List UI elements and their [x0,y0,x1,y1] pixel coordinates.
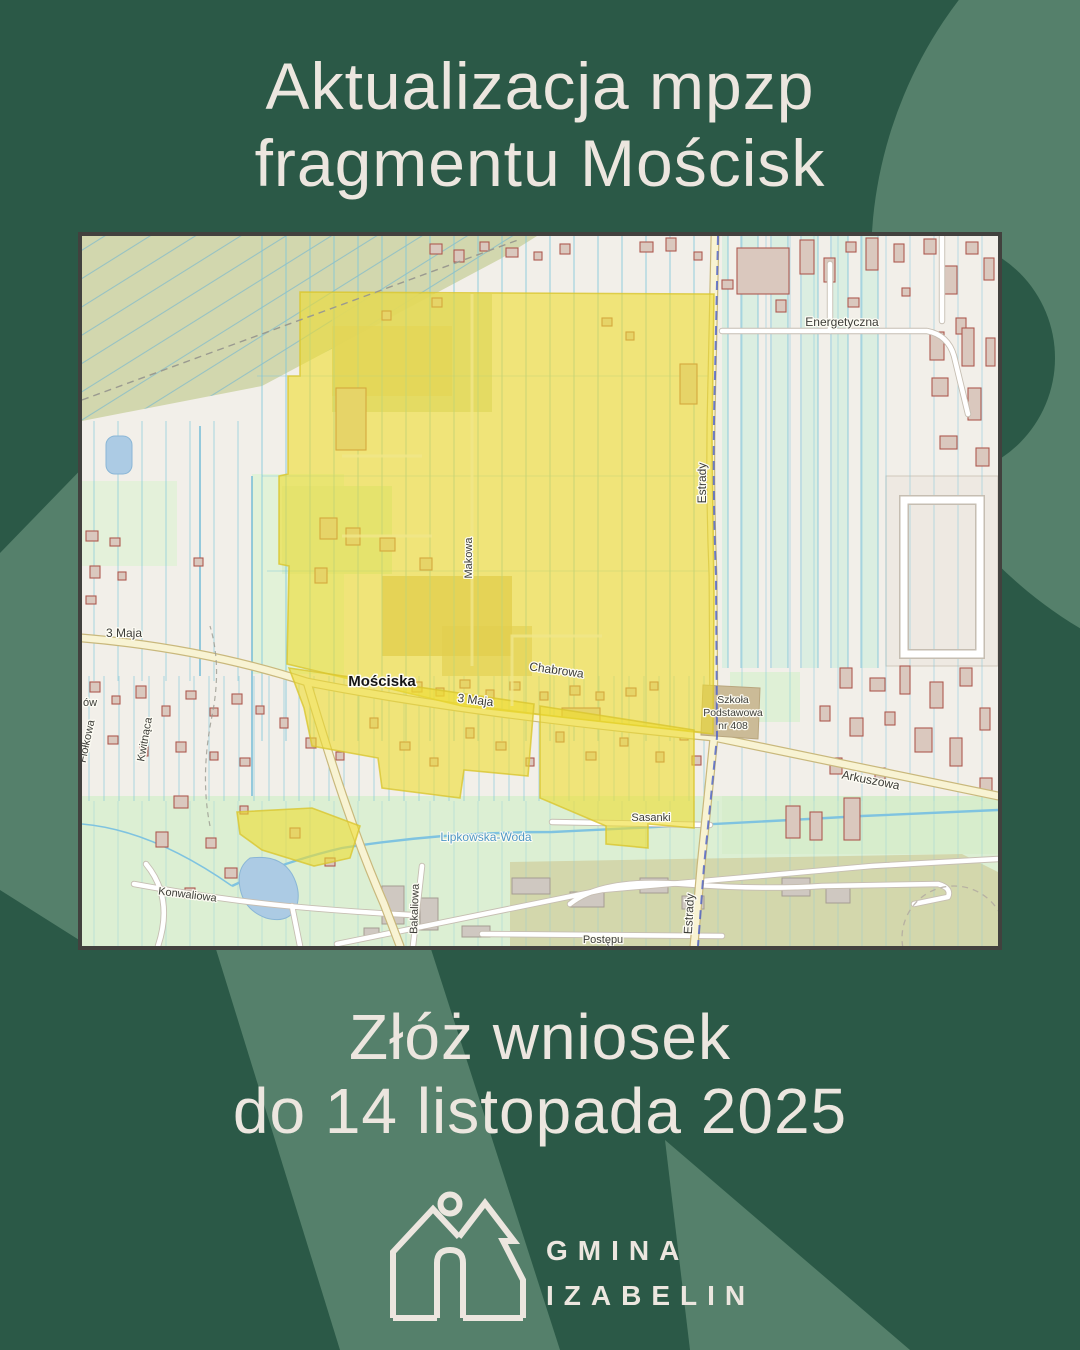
title-line-2: fragmentu Mościsk [0,125,1080,202]
pond-small [106,436,132,474]
title-line-1: Aktualizacja mpzp [0,48,1080,125]
school-label-line2: Podstawowa [703,707,763,719]
street-label-sasanki: Sasanki [631,812,670,824]
poster-title: Aktualizacja mpzp fragmentu Mościsk [0,48,1080,202]
street-label-makowa: Makowa [463,537,475,579]
school-label-line3: nr 408 [718,720,748,732]
place-label-moscisk: Mościska [348,673,416,690]
cta-line-1: Złóż wniosek [0,1000,1080,1074]
street-label-fragment-ow: ów [83,697,97,709]
street-label-estrady-north: Estrady [695,463,709,504]
street-label-estrady-south: Estrady [681,893,697,934]
school-label-line1: Szkoła [717,694,749,706]
street-label-3maja-west: 3 Maja [106,626,142,640]
street-label-postepu: Postępu [583,934,623,946]
logo-org-line-1: GMINA [546,1228,755,1273]
logo-text: GMINA IZABELIN [546,1228,755,1318]
poster-root: Aktualizacja mpzp fragmentu Mościsk [0,0,1080,1350]
cta-text: Złóż wniosek do 14 listopada 2025 [0,1000,1080,1148]
gmina-izabelin-logo: GMINA IZABELIN [386,1190,806,1335]
house-icon [393,1209,459,1318]
cta-line-2: do 14 listopada 2025 [0,1074,1080,1148]
tree-icon [459,1203,523,1318]
sun-icon [441,1195,460,1214]
planning-map: Mościska 3 Maja 3 Maja Chabrowa Makowa E… [82,236,998,946]
stream-label-lipkowska-woda: Lipkowska-Woda [440,830,531,844]
plan-area-main [279,292,714,734]
door-icon [437,1250,463,1318]
street-label-bakaliowa: Bakaliowa [408,883,422,934]
house-tree-sun-icon [386,1190,531,1330]
map-frame: Mościska 3 Maja 3 Maja Chabrowa Makowa E… [78,232,1002,950]
street-label-energetyczna: Energetyczna [805,315,879,329]
logo-org-line-2: IZABELIN [546,1273,755,1318]
